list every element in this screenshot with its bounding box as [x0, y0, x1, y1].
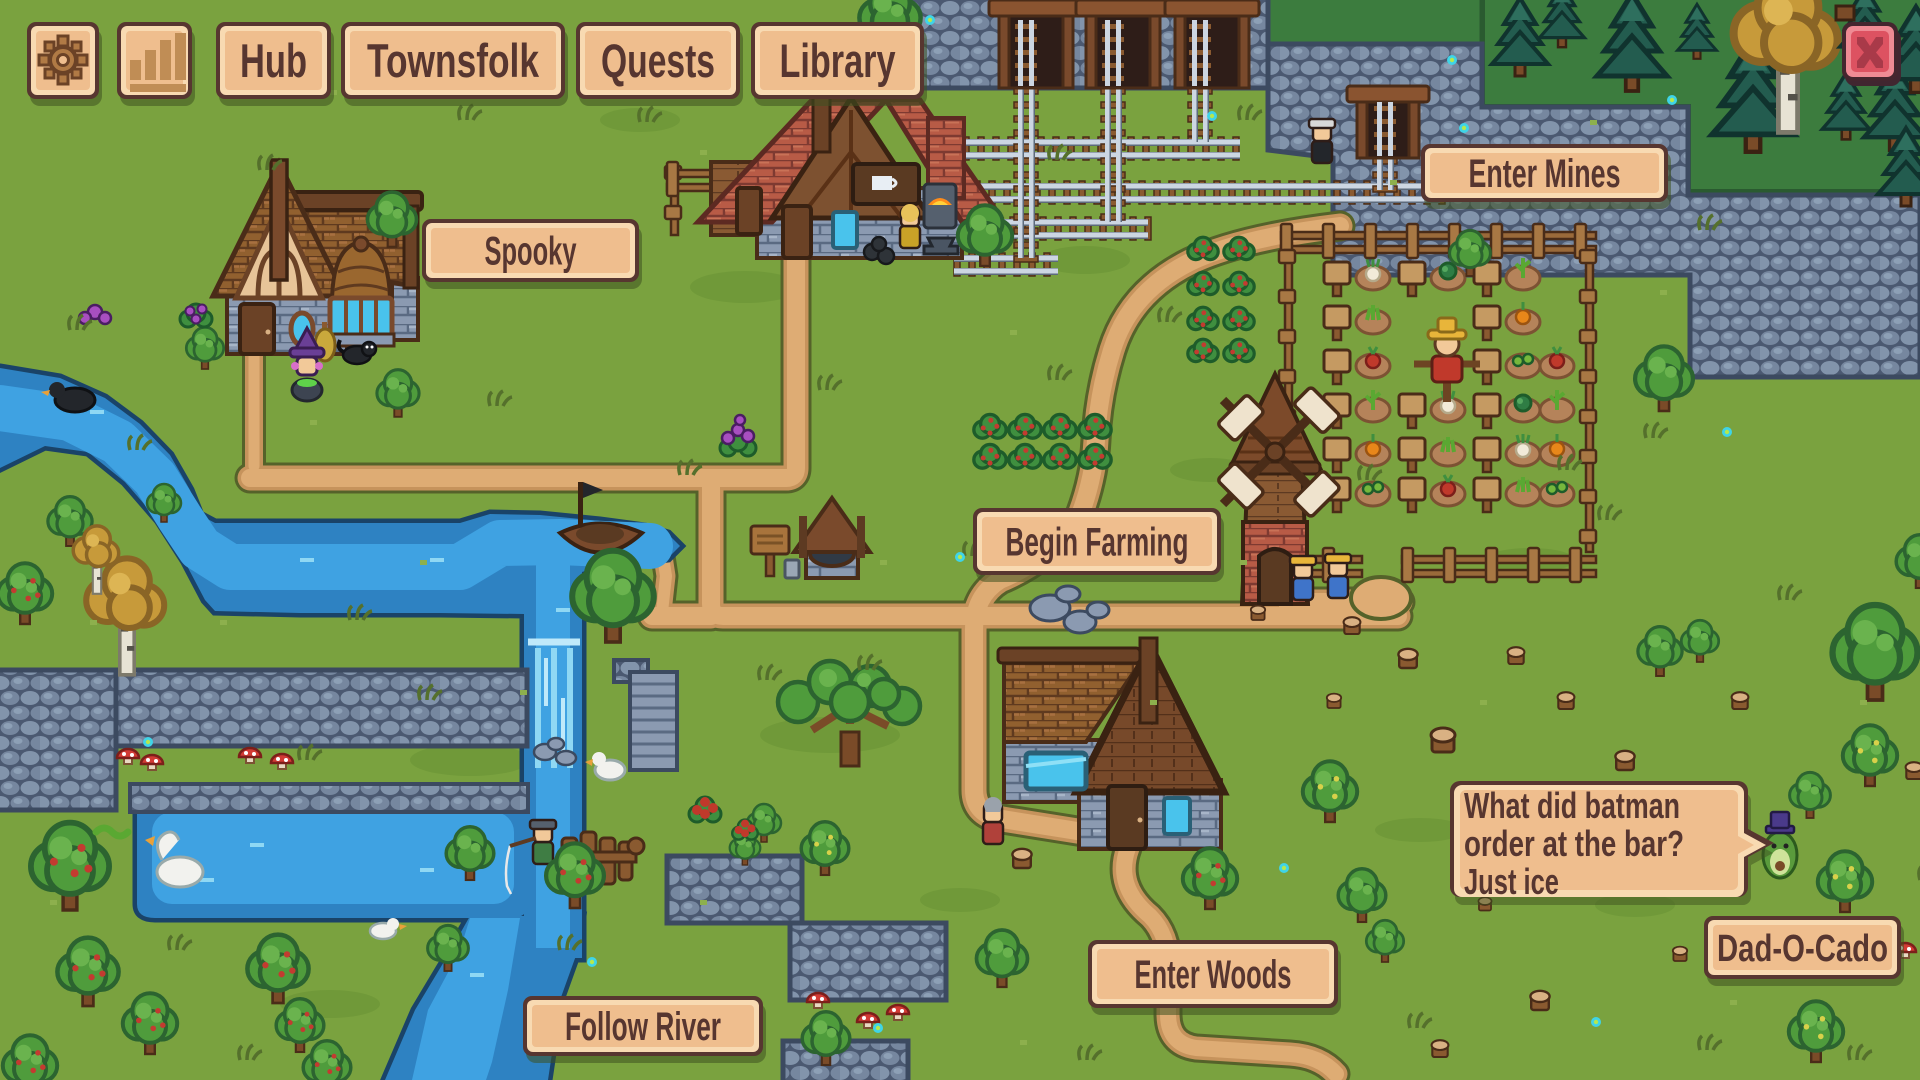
svg-text:What did batman: What did batman: [1464, 785, 1680, 826]
svg-text:Just ice: Just ice: [1464, 861, 1559, 902]
svg-text:Hub: Hub: [240, 34, 307, 87]
svg-text:Enter Woods: Enter Woods: [1135, 953, 1292, 997]
svg-text:order at the bar?: order at the bar?: [1464, 823, 1684, 864]
svg-text:Begin Farming: Begin Farming: [1006, 521, 1189, 565]
svg-text:Enter Mines: Enter Mines: [1469, 152, 1621, 196]
svg-text:Townsfolk: Townsfolk: [367, 34, 540, 87]
svg-text:Spooky: Spooky: [485, 230, 577, 274]
svg-text:Follow River: Follow River: [565, 1005, 721, 1049]
svg-text:Dad-O-Cado: Dad-O-Cado: [1717, 928, 1888, 970]
svg-text:Library: Library: [780, 34, 896, 87]
svg-text:Quests: Quests: [601, 34, 715, 87]
